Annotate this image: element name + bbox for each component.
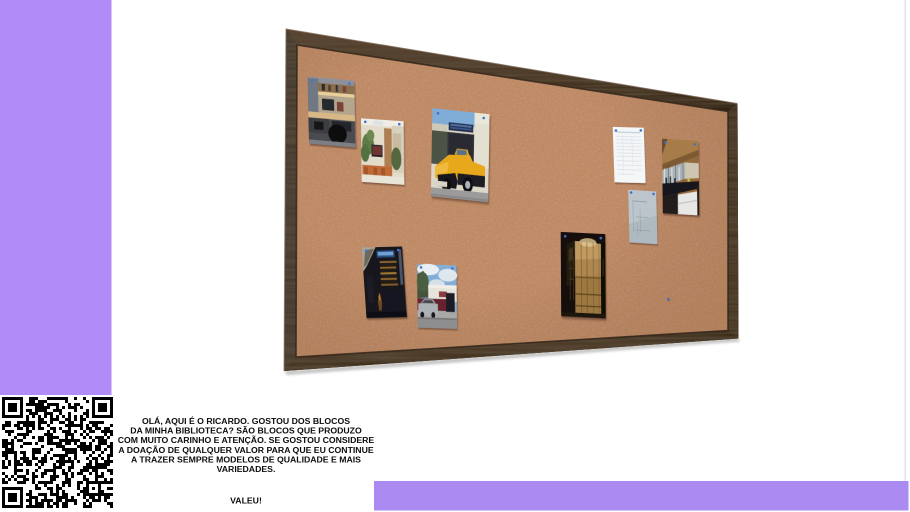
svg-text:OLÁ, AQUI É O RICARDO. GOSTOU: OLÁ, AQUI É O RICARDO. GOSTOU DOS BLOCOS	[142, 416, 350, 426]
svg-text:DA MINHA BIBLIOTECA? SÃO BLOCO: DA MINHA BIBLIOTECA? SÃO BLOCOS QUE PROD…	[130, 426, 362, 436]
svg-text:VARIEDADES.: VARIEDADES.	[217, 464, 276, 474]
svg-text:A TRAZER SEMPRE MODELOS DE QUA: A TRAZER SEMPRE MODELOS DE QUALIDADE E M…	[131, 454, 361, 464]
svg-text:VALEU!: VALEU!	[230, 496, 262, 506]
svg-text:A DOAÇÃO DE QUALQUER VALOR PAR: A DOAÇÃO DE QUALQUER VALOR PARA QUE EU C…	[118, 445, 374, 455]
svg-text:COM MUITO CARINHO E ATENÇÃO. S: COM MUITO CARINHO E ATENÇÃO. SE GOSTOU C…	[118, 435, 375, 445]
